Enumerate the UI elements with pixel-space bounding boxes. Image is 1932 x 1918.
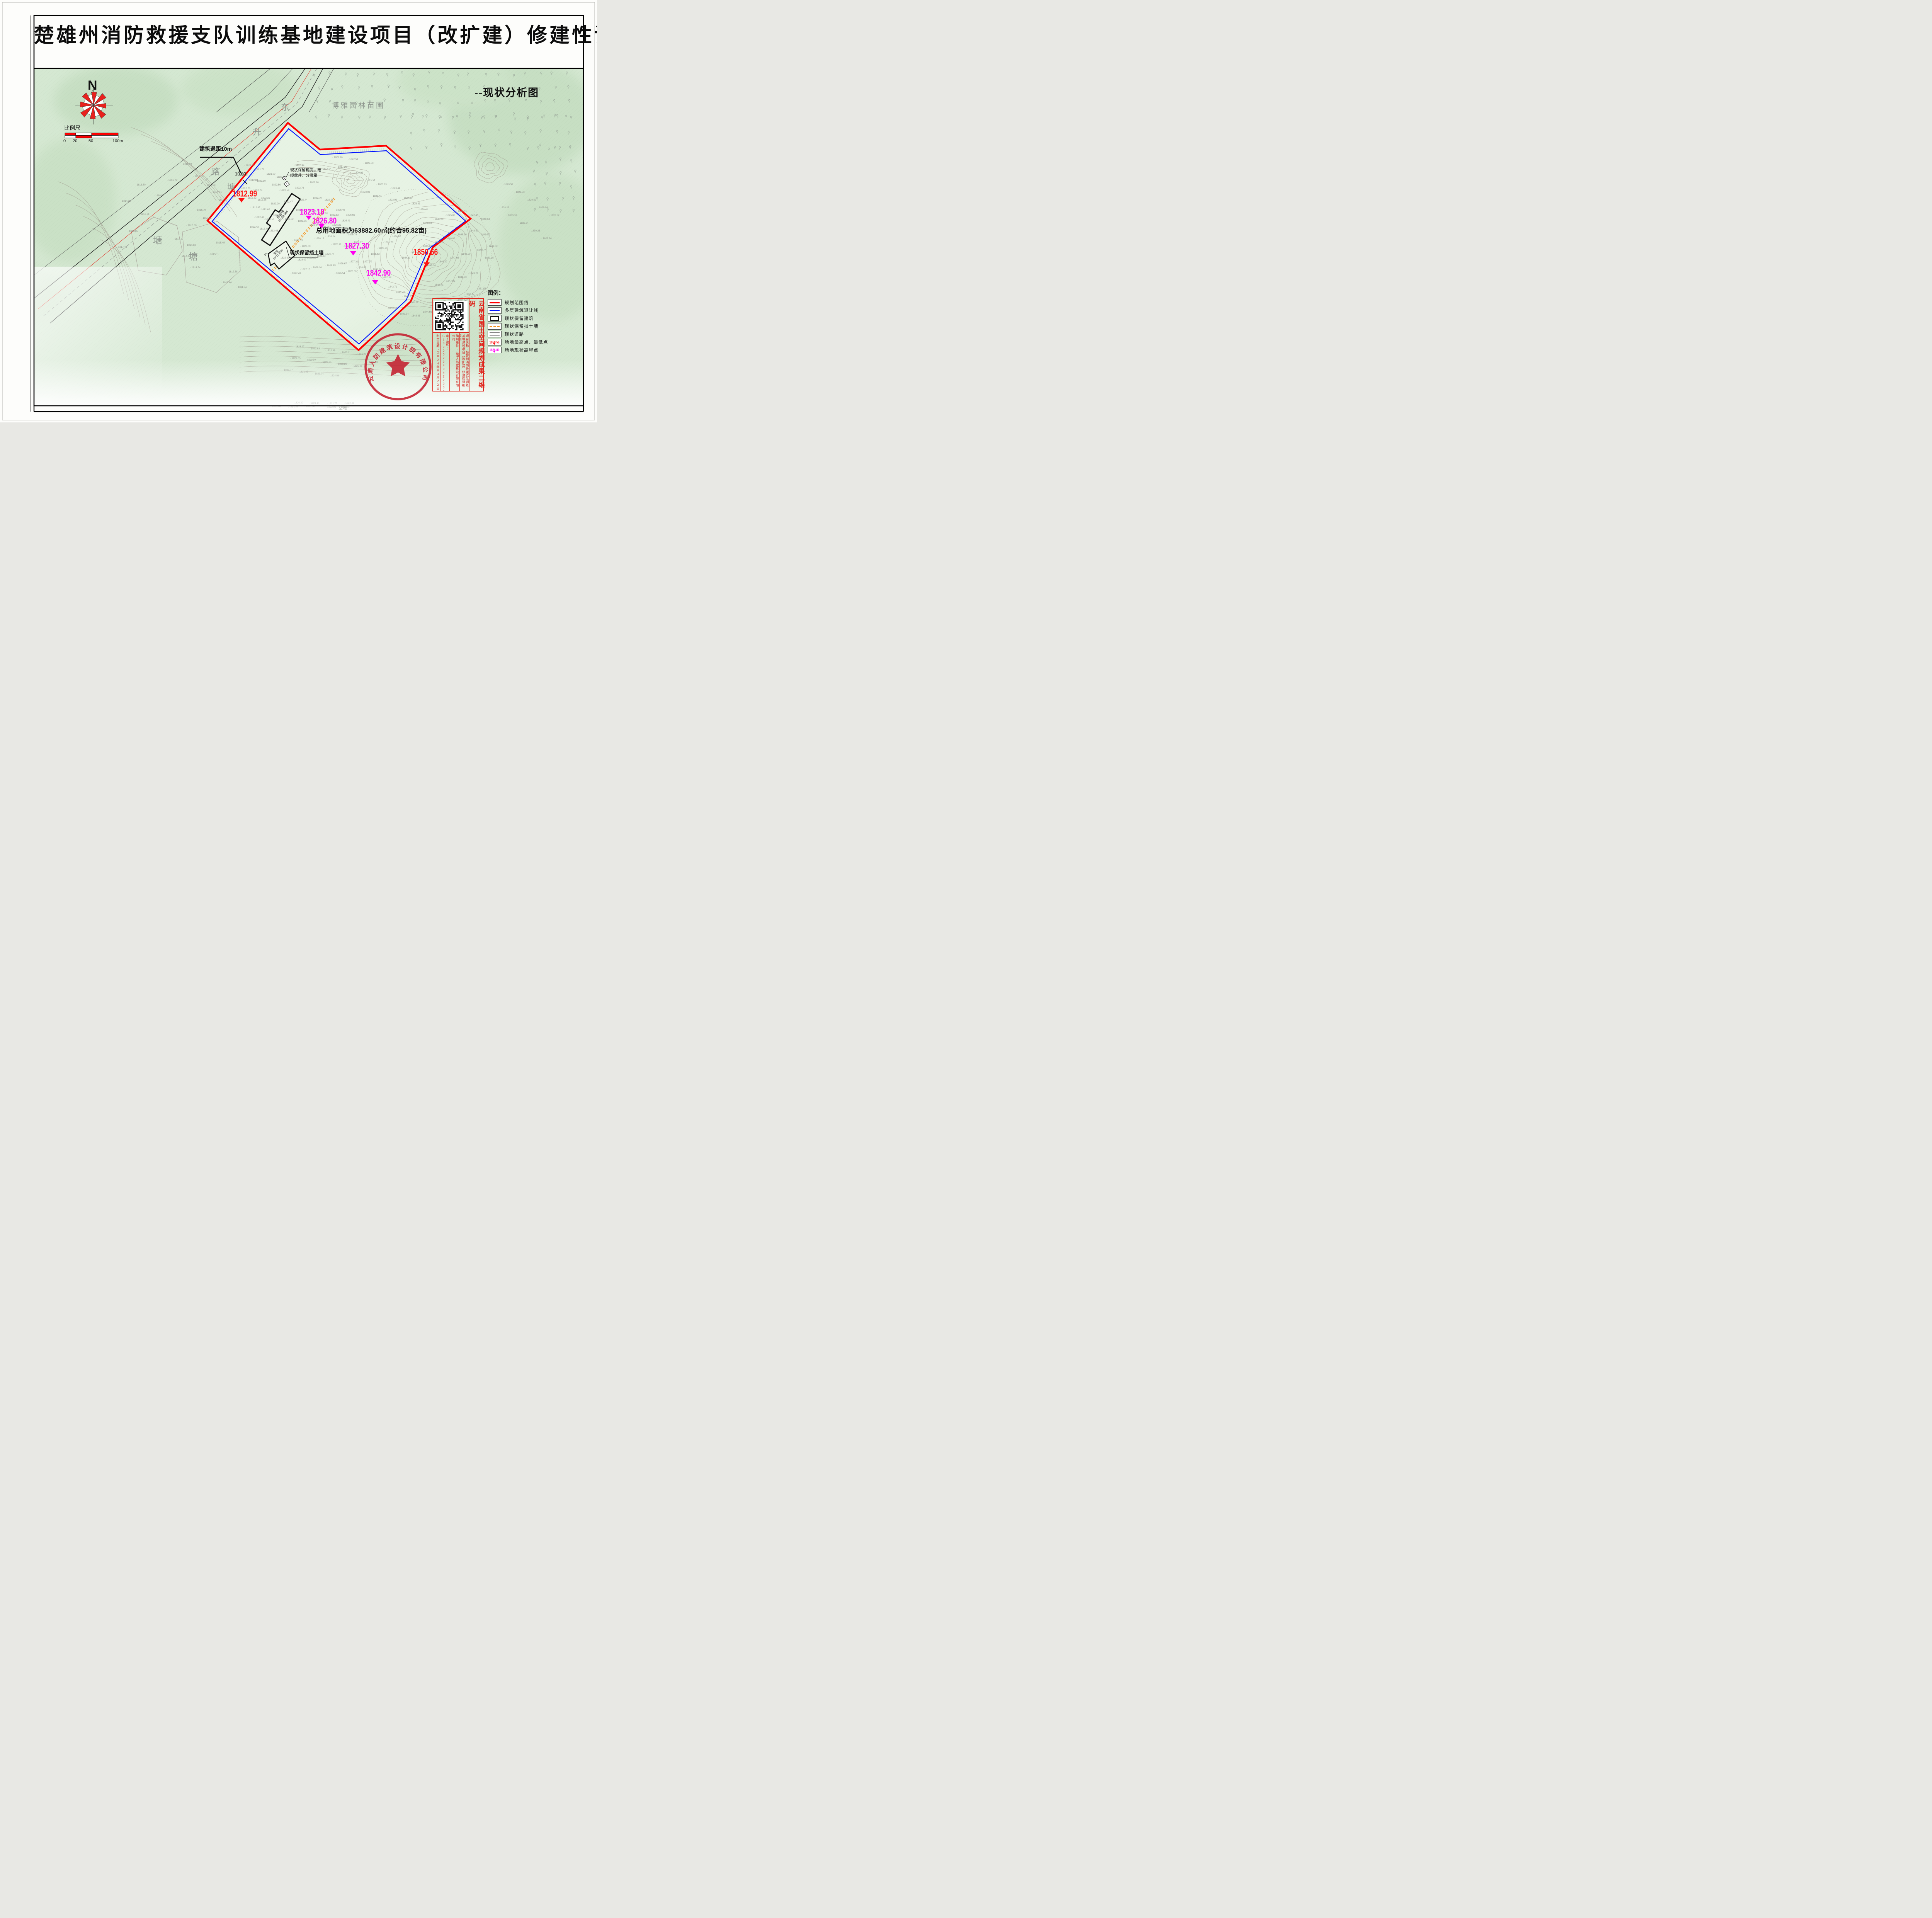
svg-text:· 1812.50: · 1812.50 (264, 218, 274, 221)
legend-building-icon (488, 315, 502, 322)
legend-item-boundary: 规划范围线 (488, 300, 571, 305)
svg-text:· 1843.47: · 1843.47 (395, 291, 405, 294)
elev-spot-1827-marker-icon (350, 251, 356, 255)
svg-text:· 1826.65: · 1826.65 (325, 264, 336, 267)
svg-text:· 1828.57: · 1828.57 (549, 214, 560, 217)
legend-setback-icon (488, 307, 502, 314)
svg-text:· 1826.69: · 1826.69 (356, 266, 366, 269)
legend-spot-point-icon: 1826.80 (488, 347, 502, 353)
elev-highest-marker-icon (423, 262, 430, 267)
svg-text:· 1849.52: · 1849.52 (487, 245, 498, 248)
svg-text:· 1826.19: · 1826.19 (314, 237, 324, 240)
svg-text:· 1825.93: · 1825.93 (410, 203, 420, 205)
svg-text:· 1816.94: · 1816.94 (182, 163, 192, 165)
svg-text:· 1827.43: · 1827.43 (291, 272, 301, 275)
svg-text:· 1816.71: · 1816.71 (139, 213, 150, 216)
svg-text:· 1822.31: · 1822.31 (260, 197, 270, 199)
svg-text:· 1814.29: · 1814.29 (121, 200, 131, 203)
svg-text:· 1817.41: · 1817.41 (117, 246, 127, 248)
legend-item-building: 现状保留建筑 (488, 315, 571, 321)
svg-text:· 1848.50: · 1848.50 (468, 230, 478, 232)
svg-text:· 1813.60: · 1813.60 (135, 184, 146, 186)
svg-text:· 1817.33: · 1817.33 (211, 191, 222, 194)
scale-bar (65, 133, 118, 138)
field-agency: 编制单位：云南人防建筑设计院有限公司 (450, 333, 460, 391)
svg-text:· 1823.03: · 1823.03 (360, 191, 370, 194)
svg-text:· 1812.47: · 1812.47 (250, 206, 260, 209)
nursery-label: 博雅园林苗圃 (332, 102, 385, 110)
vacant-label: 空地 (338, 406, 347, 411)
svg-text:· 1821.14: · 1821.14 (309, 402, 320, 405)
svg-text:· 1824.39: · 1824.39 (402, 197, 413, 199)
scalebar-tick-100: 100m (112, 139, 123, 144)
svg-text:· 1832.34: · 1832.34 (518, 222, 529, 225)
svg-text:· 1817.40: · 1817.40 (217, 199, 228, 201)
svg-text:· 1823.35: · 1823.35 (365, 179, 375, 182)
svg-text:· 1823.92: · 1823.92 (387, 199, 397, 201)
sheet-title: 楚雄州消防救援支队训练基地建设项目（改扩建）修建性详细规划 (34, 26, 583, 47)
svg-text:· 1849.07: · 1849.07 (480, 233, 490, 236)
svg-text:· 1812.42: · 1812.42 (248, 226, 259, 228)
legend-title: 图例： (488, 289, 571, 297)
svg-text:· 1823.12: · 1823.12 (306, 257, 316, 259)
elev-lowest: 1812.99 (233, 190, 257, 199)
svg-text:· 1826.24: · 1826.24 (325, 235, 335, 238)
svg-text:· 1821.89: · 1821.89 (244, 164, 255, 167)
svg-text:· 1821.00: · 1821.00 (265, 173, 276, 175)
svg-text:· 1817.04: · 1817.04 (321, 168, 332, 170)
svg-text:· 1821.71: · 1821.71 (254, 168, 264, 171)
svg-text:· 1817.21: · 1817.21 (201, 217, 212, 220)
svg-text:· 1823.71: · 1823.71 (356, 353, 366, 356)
svg-text:· 1826.49: · 1826.49 (335, 209, 345, 211)
svg-text:· 1826.87: · 1826.87 (391, 235, 401, 238)
svg-text:· 1833.18: · 1833.18 (507, 214, 517, 217)
svg-text:· 1846.41: · 1846.41 (433, 284, 444, 286)
svg-text:· 1815.11: · 1815.11 (209, 253, 219, 256)
field-stamp-date: 制章日期：2024年04月22日 (433, 333, 440, 391)
sheet-subtitle: --现状分析图 (474, 87, 539, 98)
svg-text:· 1844.11: · 1844.11 (400, 257, 411, 259)
utility-note-line1: 现状保留箱变、电 (290, 168, 321, 173)
svg-text:· 1827.31: · 1827.31 (348, 260, 358, 263)
svg-text:· 1843.95: · 1843.95 (410, 315, 420, 317)
svg-text:· 1813.65: · 1813.65 (128, 230, 138, 233)
svg-text:· 1829.73: · 1829.73 (514, 191, 525, 194)
svg-text:· 1814.54: · 1814.54 (190, 266, 201, 269)
elev-spot-1826-marker-icon (318, 224, 325, 228)
svg-text:· 1822.80: · 1822.80 (363, 162, 374, 165)
svg-text:· 1812.66: · 1812.66 (221, 281, 232, 284)
svg-text:· 1846.90: · 1846.90 (456, 233, 467, 236)
svg-text:· 1847.65: · 1847.65 (449, 257, 459, 259)
svg-text:· 1845.64: · 1845.64 (433, 218, 444, 221)
elev-spot-1823-marker-icon (306, 216, 312, 220)
svg-text:· 1826.74: · 1826.74 (377, 247, 388, 250)
svg-text:· 1822.59: · 1822.59 (348, 158, 358, 161)
svg-text:· 1826.16: · 1826.16 (311, 266, 322, 269)
svg-text:· 1826.54: · 1826.54 (335, 272, 345, 275)
svg-text:· 1849.77: · 1849.77 (476, 249, 486, 252)
setback-note: 建筑退距10m (199, 146, 232, 152)
legend-extreme-point-icon: 1850.56 (488, 339, 502, 345)
svg-text:· 1826.62: · 1826.62 (369, 253, 380, 255)
svg-text:· 1816.79: · 1816.79 (196, 209, 206, 211)
svg-text:· 1845.05: · 1845.05 (445, 214, 455, 217)
legend-item-extreme-point: 1850.56 场地最高点、最低点 (488, 339, 571, 345)
svg-text:· 1821.96: · 1821.96 (332, 156, 343, 159)
svg-text:· 1845.86: · 1845.86 (433, 241, 444, 244)
svg-text:· 1822.50: · 1822.50 (270, 184, 281, 186)
legend-road-icon (488, 331, 502, 337)
pond-label-2: 塘 (189, 252, 198, 262)
legend-item-wall: 现状保留挡土墙 (488, 323, 571, 329)
svg-text:· 1850.64: · 1850.64 (464, 293, 474, 296)
svg-text:· 1822.47: · 1822.47 (282, 201, 293, 203)
svg-text:· 1816.50: · 1816.50 (154, 194, 164, 197)
legend: 图例： 规划范围线 多层建筑退让线 现状保留建筑 现状保留挡土墙 现状道路 18… (488, 289, 571, 355)
approval-fields: 制章日期：2024年04月22日 电子编号：G182002240422004[云… (433, 332, 469, 391)
svg-text:· 1822.19: · 1822.19 (255, 180, 266, 182)
svg-text:· 1822.20: · 1822.20 (269, 203, 280, 205)
elev-spot-1842: 1842.90 (366, 269, 391, 278)
field-project-name: 项目名称：楚雄州消防救援支队训练基地建设项目（改扩建）修建性详细规划 (460, 333, 469, 391)
svg-text:· 1841.34: · 1841.34 (398, 313, 409, 315)
svg-text:· 1846.02: · 1846.02 (445, 237, 455, 240)
corner-fade (34, 267, 162, 406)
svg-text:· 1812.62: · 1812.62 (260, 208, 270, 211)
svg-text:· 1826.78: · 1826.78 (383, 241, 393, 244)
svg-text:· 1814.53: · 1814.53 (185, 244, 196, 247)
svg-text:· 1847.45: · 1847.45 (468, 214, 478, 217)
svg-text:· 1826.71: · 1826.71 (331, 243, 342, 246)
svg-text:· 1829.58: · 1829.58 (503, 183, 513, 186)
svg-text:· 1848.53: · 1848.53 (456, 276, 467, 279)
legend-boundary-icon (488, 299, 502, 306)
svg-text:· 1823.63: · 1823.63 (376, 183, 387, 186)
svg-text:· 1846.13: · 1846.13 (422, 222, 432, 225)
svg-text:· 1821.75: · 1821.75 (327, 402, 337, 405)
legend-item-road: 现状道路 (488, 331, 571, 337)
svg-text:· 1826.65: · 1826.65 (345, 214, 355, 216)
svg-text:· 1816.60: · 1816.60 (186, 224, 197, 227)
approval-panel-side-label: 云南省国土空间规划成果二维码 (469, 299, 483, 391)
svg-text:· 1829.52: · 1829.52 (526, 199, 536, 201)
svg-text:· 1822.68: · 1822.68 (325, 349, 335, 352)
svg-text:· 1822.69: · 1822.69 (279, 257, 289, 259)
svg-text:· 1823.09: · 1823.09 (300, 245, 311, 248)
svg-text:· 1823.44: · 1823.44 (390, 187, 400, 190)
legend-item-spot-point: 1826.80 场地现状高程点 (488, 347, 571, 353)
pond-label-1: 塘 (153, 236, 162, 245)
svg-text:· 1844.66: · 1844.66 (422, 311, 432, 313)
scalebar-title: 比例尺 (64, 125, 80, 131)
svg-text:· 1851.84: · 1851.84 (476, 288, 486, 290)
svg-text:· 1817.05: · 1817.05 (193, 175, 204, 178)
svg-text:· 1822.41: · 1822.41 (344, 402, 354, 405)
legend-wall-icon (488, 323, 502, 330)
road-char-lu: 路 (211, 167, 219, 176)
svg-text:· 1816.73: · 1816.73 (167, 179, 177, 182)
svg-text:· 1827.70: · 1827.70 (362, 260, 372, 263)
svg-text:· 1812.46: · 1812.46 (268, 230, 278, 232)
svg-text:· 1848.99: · 1848.99 (460, 253, 471, 255)
svg-text:· 1820.20: · 1820.20 (293, 402, 303, 404)
svg-text:· 1822.78: · 1822.78 (323, 199, 333, 201)
svg-text:· 1822.75: · 1822.75 (293, 239, 303, 242)
svg-text:· 1842.71: · 1842.71 (387, 286, 397, 288)
north-label: N (88, 79, 97, 93)
road-char-dong: 东 (281, 103, 289, 112)
svg-text:· 1811.54: · 1811.54 (236, 286, 247, 289)
field-eid: 电子编号：G182002240422004[云] (440, 333, 450, 391)
svg-text:· 1827.10: · 1827.10 (300, 268, 310, 271)
legend-item-setback: 多层建筑退让线 (488, 308, 571, 313)
svg-text:· 1823.07: · 1823.07 (296, 259, 306, 261)
svg-text:· 1851.15: · 1851.15 (483, 257, 494, 259)
svg-text:· 1817.15: · 1817.15 (294, 164, 304, 167)
svg-text:· 1823.11: · 1823.11 (340, 351, 351, 354)
svg-text:· 1822.05: · 1822.05 (290, 357, 301, 360)
svg-text:· 1828.29: · 1828.29 (499, 206, 509, 209)
svg-text:· 1844.97: · 1844.97 (402, 295, 413, 298)
svg-text:· 1817.25: · 1817.25 (337, 166, 347, 168)
approval-panel: 云南省国土空间规划成果二维码 制章日期：2024年04月22日 电子编号：G18… (432, 298, 484, 391)
svg-text:· 1849.21: · 1849.21 (468, 272, 478, 275)
scalebar-tick-0: 0 (63, 139, 66, 144)
svg-text:· 1826.77: · 1826.77 (324, 253, 334, 255)
svg-text:· 1812.43: · 1812.43 (254, 216, 264, 219)
svg-text:· 1822.58: · 1822.58 (279, 189, 289, 192)
svg-text:· 1826.41: · 1826.41 (340, 220, 350, 222)
svg-text:· 1846.03: · 1846.03 (456, 210, 467, 213)
scalebar-tick-20: 20 (73, 139, 77, 144)
svg-text:· 1822.52: · 1822.52 (283, 218, 294, 221)
svg-text:· 1816.89: · 1816.89 (205, 184, 216, 187)
svg-text:· 1822.44: · 1822.44 (297, 199, 308, 201)
wall-note: 现状保留挡土墙 (290, 250, 324, 255)
utility-note-line2: 缆盘井、分接箱 (290, 174, 317, 178)
svg-text:· 1846.22: · 1846.22 (437, 260, 447, 263)
area-note: 总用地面积为63882.60㎡(约合95.82亩) (316, 228, 427, 234)
svg-text:· 1815.45: · 1815.45 (214, 242, 225, 244)
svg-text:· 1822.83: · 1822.83 (310, 347, 320, 350)
svg-text:· 1822.76: · 1822.76 (294, 187, 304, 189)
svg-text:· 1826.60: · 1826.60 (346, 270, 357, 273)
elev-spot-1842-marker-icon (372, 280, 378, 284)
svg-text:· 1829.94: · 1829.94 (541, 237, 552, 240)
svg-text:· 1822.70: · 1822.70 (311, 197, 322, 199)
svg-text:· 1823.41: · 1823.41 (371, 195, 382, 197)
drawing-sheet: · 1816.94· 1816.73· 1816.50· 1817.05· 18… (0, 0, 597, 422)
scalebar-tick-50: 50 (88, 139, 93, 144)
svg-text:· 1840.18: · 1840.18 (387, 307, 397, 310)
svg-text:· 1812.44: · 1812.44 (258, 228, 269, 230)
setback-dimension: 10.00 (235, 172, 246, 177)
svg-text:· 1830.25: · 1830.25 (530, 230, 540, 232)
svg-text:· 1822.36: · 1822.36 (296, 220, 307, 223)
map-artwork: · 1816.94· 1816.73· 1816.50· 1817.05· 18… (0, 0, 597, 422)
elev-highest: 1850.56 (413, 248, 438, 257)
svg-text:· 1845.21: · 1845.21 (408, 301, 418, 304)
svg-text:· 1820.92: · 1820.92 (353, 172, 363, 174)
svg-text:· 1826.41: · 1826.41 (418, 208, 428, 211)
svg-text:· 1822.04: · 1822.04 (275, 176, 286, 179)
elev-spot-1827: 1827.30 (345, 242, 369, 251)
elev-spot-1823: 1823.10 (300, 208, 324, 217)
svg-text:· 1812.58: · 1812.58 (227, 271, 238, 273)
elev-lowest-marker-icon (238, 198, 245, 203)
svg-text:· 1814.57: · 1814.57 (173, 238, 184, 240)
road-char-sheng: 升 (253, 128, 261, 136)
svg-text:· 1821.25: · 1821.25 (288, 406, 298, 409)
svg-text:· 1847.95: · 1847.95 (445, 280, 455, 283)
svg-text:· 1823.27: · 1823.27 (294, 345, 304, 348)
svg-text:· 1826.67: · 1826.67 (337, 262, 347, 265)
svg-text:· 1829.04: · 1829.04 (537, 206, 548, 209)
svg-text:· 1822.80: · 1822.80 (308, 181, 319, 184)
svg-text:· 1849.04: · 1849.04 (480, 218, 490, 221)
